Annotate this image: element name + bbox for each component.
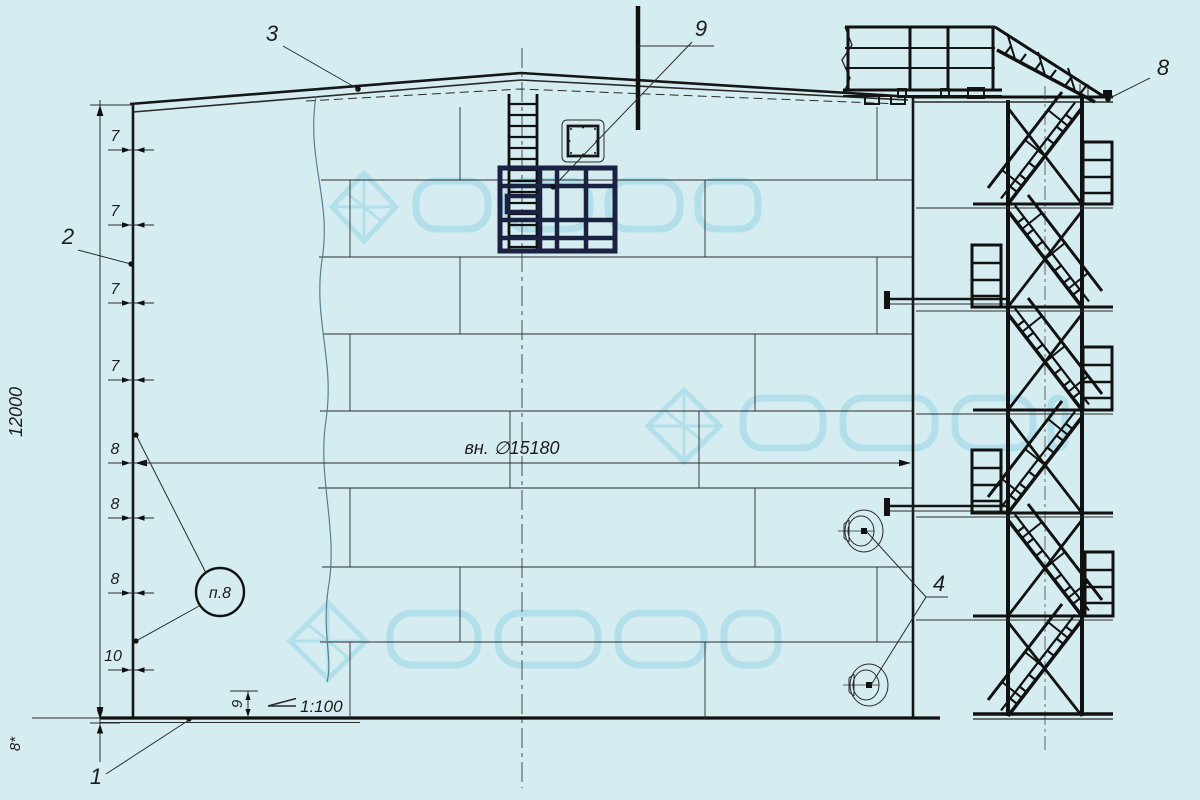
railing-panel-left-2: [972, 450, 1001, 513]
bottom-rise-text: 9: [229, 699, 246, 708]
height-dimension-text: 12000: [6, 387, 26, 437]
callout-pos-8: 8: [1105, 55, 1170, 102]
hatch-bolt-dots: [569, 127, 598, 156]
course-thickness-callouts: 7 7 7 7 8 8 8: [104, 128, 154, 673]
thickness-label: 8: [111, 496, 120, 513]
note-circle-text: п.8: [209, 585, 231, 602]
thickness-tick-5: 8: [108, 441, 154, 466]
tank-roof: [130, 73, 913, 112]
pos-2-label: 2: [61, 224, 74, 249]
note-circle-p8: п.8: [133, 432, 244, 643]
stair-ground-line: [973, 714, 1113, 719]
pos-1-label: 1: [90, 764, 102, 789]
stair-flight-top: [995, 27, 1103, 102]
break-wavy-line: [314, 96, 331, 682]
thickness-label: 8: [111, 571, 120, 588]
drawing-canvas: вн. ∅15180 12000 8* 7 7 7: [0, 0, 1200, 800]
slope-text: 1:100: [300, 697, 343, 716]
slope-angle-icon: [268, 699, 296, 707]
dimension-inner-diameter: вн. ∅15180: [135, 438, 911, 466]
manhole-lower: [843, 664, 888, 706]
bottom-thickness-text: 8*: [7, 736, 24, 751]
watermark-logo-top: [332, 173, 758, 241]
thickness-label: 8: [111, 441, 120, 458]
roof-inner-line: [133, 80, 908, 112]
thickness-tick-2: 7: [108, 203, 154, 228]
roof-platform: [842, 27, 1002, 104]
pos-3-label: 3: [266, 21, 279, 46]
thickness-tick-8: 10: [104, 648, 154, 673]
thickness-label: 7: [111, 128, 121, 145]
dimension-bottom-thickness: 8*: [7, 710, 120, 752]
roof-outer-line: [130, 73, 913, 104]
thickness-label: 10: [104, 648, 122, 665]
callout-pos-3: 3: [266, 21, 361, 92]
thickness-tick-4: 7: [108, 358, 154, 383]
railing-panel-right-1: [1083, 142, 1112, 204]
callout-pos-4: 4: [866, 531, 948, 685]
callout-pos-9: 9: [550, 16, 714, 190]
pos-4-label: 4: [933, 571, 945, 596]
thickness-tick-1: 7: [108, 128, 154, 153]
pos-9-label: 9: [695, 16, 707, 41]
callout-pos-1: 1: [90, 716, 192, 789]
railing-panel-left-1: [972, 245, 1001, 307]
callout-pos-2: 2: [61, 224, 134, 267]
dimension-bottom-slope: 9 1:100: [229, 691, 343, 718]
thickness-label: 7: [111, 358, 121, 375]
inner-diameter-text: вн. ∅15180: [464, 438, 559, 458]
thickness-tick-3: 7: [108, 281, 154, 306]
tank-elevation-drawing: вн. ∅15180 12000 8* 7 7 7: [0, 0, 1200, 800]
pos-8-label: 8: [1157, 55, 1170, 80]
stair-tower: [916, 27, 1113, 752]
thickness-label: 7: [111, 203, 121, 220]
railing-panel-right-2: [1083, 347, 1112, 410]
thickness-label: 7: [111, 281, 121, 298]
thickness-tick-6: 8: [108, 496, 154, 521]
thickness-tick-7: 8: [108, 571, 154, 596]
manhole-upper: [838, 510, 883, 552]
